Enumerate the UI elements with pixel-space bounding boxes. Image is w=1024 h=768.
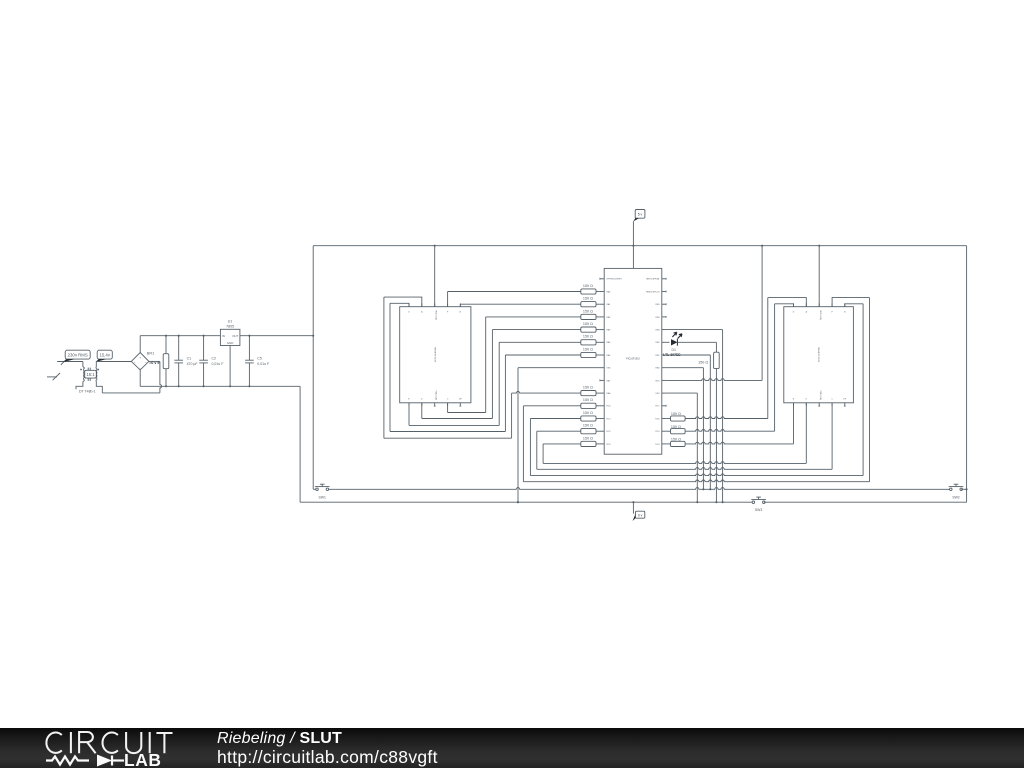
- svg-text:SW1: SW1: [319, 495, 326, 499]
- svg-text:7805: 7805: [226, 325, 234, 329]
- svg-text:C2: C2: [212, 357, 217, 361]
- svg-text:VSS: VSS: [655, 393, 660, 395]
- svg-text:VSS: VSS: [606, 368, 611, 370]
- svg-text:SW3: SW3: [755, 508, 762, 512]
- svg-text:SW2: SW2: [952, 495, 959, 499]
- svg-text:C5: C5: [257, 357, 262, 361]
- svg-text:U1: U1: [228, 320, 233, 324]
- svg-text:RB7/ICSPDAT: RB7/ICSPDAT: [646, 278, 660, 281]
- svg-text:D1: D1: [672, 348, 677, 352]
- svg-text:BR1: BR1: [147, 351, 154, 355]
- svg-text:150 Ω: 150 Ω: [583, 411, 593, 415]
- svg-text:150 Ω: 150 Ω: [671, 412, 681, 416]
- svg-text:+: +: [139, 355, 141, 359]
- svg-text:DT T48b-1: DT T48b-1: [79, 389, 96, 393]
- svg-text:IN: IN: [222, 334, 225, 338]
- svg-text:470 µF: 470 µF: [187, 362, 198, 366]
- svg-text:150 Ω: 150 Ω: [583, 424, 593, 428]
- svg-text:150 Ω: 150 Ω: [671, 425, 681, 429]
- svg-text:−: −: [139, 366, 141, 370]
- svg-text:~: ~: [134, 360, 136, 364]
- svg-text:150 Ω: 150 Ω: [583, 398, 593, 402]
- svg-text:150 Ω: 150 Ω: [583, 347, 593, 351]
- svg-text:150 Ω: 150 Ω: [583, 297, 593, 301]
- svg-text:150 Ω: 150 Ω: [583, 322, 593, 326]
- svg-text:VDD (CA): VDD (CA): [435, 391, 438, 401]
- svg-text:15:1: 15:1: [86, 372, 95, 377]
- svg-text:VDD: VDD: [655, 380, 660, 382]
- svg-text:VDD (CA): VDD (CA): [435, 310, 438, 320]
- svg-text:0,01u F: 0,01u F: [257, 362, 269, 366]
- svg-text:150 Ω: 150 Ω: [698, 361, 708, 365]
- svg-text:PIC16F1933: PIC16F1933: [626, 357, 640, 360]
- svg-text:VDD (CA): VDD (CA): [819, 310, 822, 320]
- svg-text:5 v: 5 v: [638, 212, 643, 216]
- svg-text:OUT: OUT: [232, 334, 238, 338]
- svg-text:LAB: LAB: [124, 750, 162, 768]
- svg-text:RB6/ICSPCLK: RB6/ICSPCLK: [646, 291, 660, 293]
- svg-text:15,4v: 15,4v: [99, 353, 110, 358]
- svg-text:VPP/MCLR/RE3: VPP/MCLR/RE3: [606, 279, 622, 281]
- svg-text:SC56-11SRWA: SC56-11SRWA: [817, 347, 820, 362]
- svg-text:~: ~: [145, 360, 147, 364]
- svg-text:0,01u F: 0,01u F: [212, 362, 224, 366]
- svg-text:150 Ω: 150 Ω: [583, 284, 593, 288]
- svg-text:C1: C1: [187, 357, 192, 361]
- svg-text:150 Ω: 150 Ω: [583, 436, 593, 440]
- svg-text:0 v: 0 v: [638, 514, 643, 518]
- svg-text:SC56-11SRWA: SC56-11SRWA: [434, 347, 437, 362]
- svg-text:GND: GND: [227, 341, 233, 345]
- svg-text:230v RMS: 230v RMS: [68, 353, 88, 358]
- svg-text:150 Ω: 150 Ω: [583, 335, 593, 339]
- svg-text:150 Ω: 150 Ω: [583, 309, 593, 313]
- svg-text:150 Ω: 150 Ω: [671, 438, 681, 442]
- svg-text:VDD (CA): VDD (CA): [819, 391, 822, 401]
- svg-text:150 Ω: 150 Ω: [583, 386, 593, 390]
